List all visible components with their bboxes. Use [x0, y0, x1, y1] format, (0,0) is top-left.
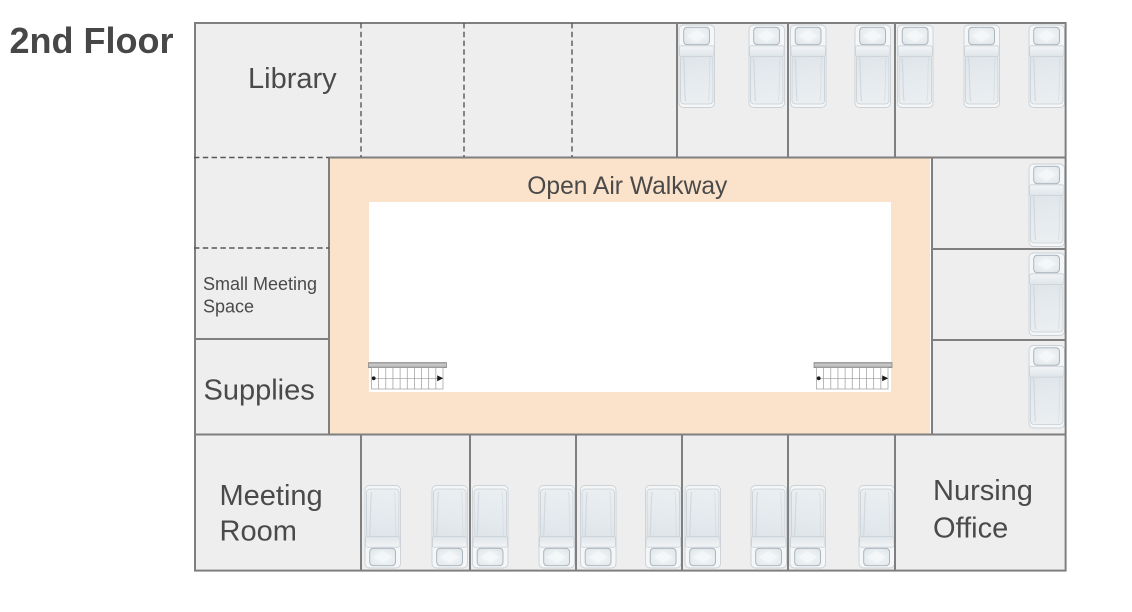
- svg-text:Library: Library: [248, 63, 337, 95]
- svg-text:Meeting: Meeting: [220, 480, 323, 512]
- svg-text:Supplies: Supplies: [204, 375, 315, 407]
- svg-text:Room: Room: [220, 515, 297, 547]
- svg-text:Nursing: Nursing: [933, 475, 1033, 507]
- svg-text:Space: Space: [203, 296, 254, 316]
- svg-text:Open Air Walkway: Open Air Walkway: [527, 173, 728, 200]
- svg-text:2nd Floor: 2nd Floor: [10, 20, 174, 61]
- svg-text:Small Meeting: Small Meeting: [203, 274, 317, 294]
- svg-text:Office: Office: [933, 512, 1008, 544]
